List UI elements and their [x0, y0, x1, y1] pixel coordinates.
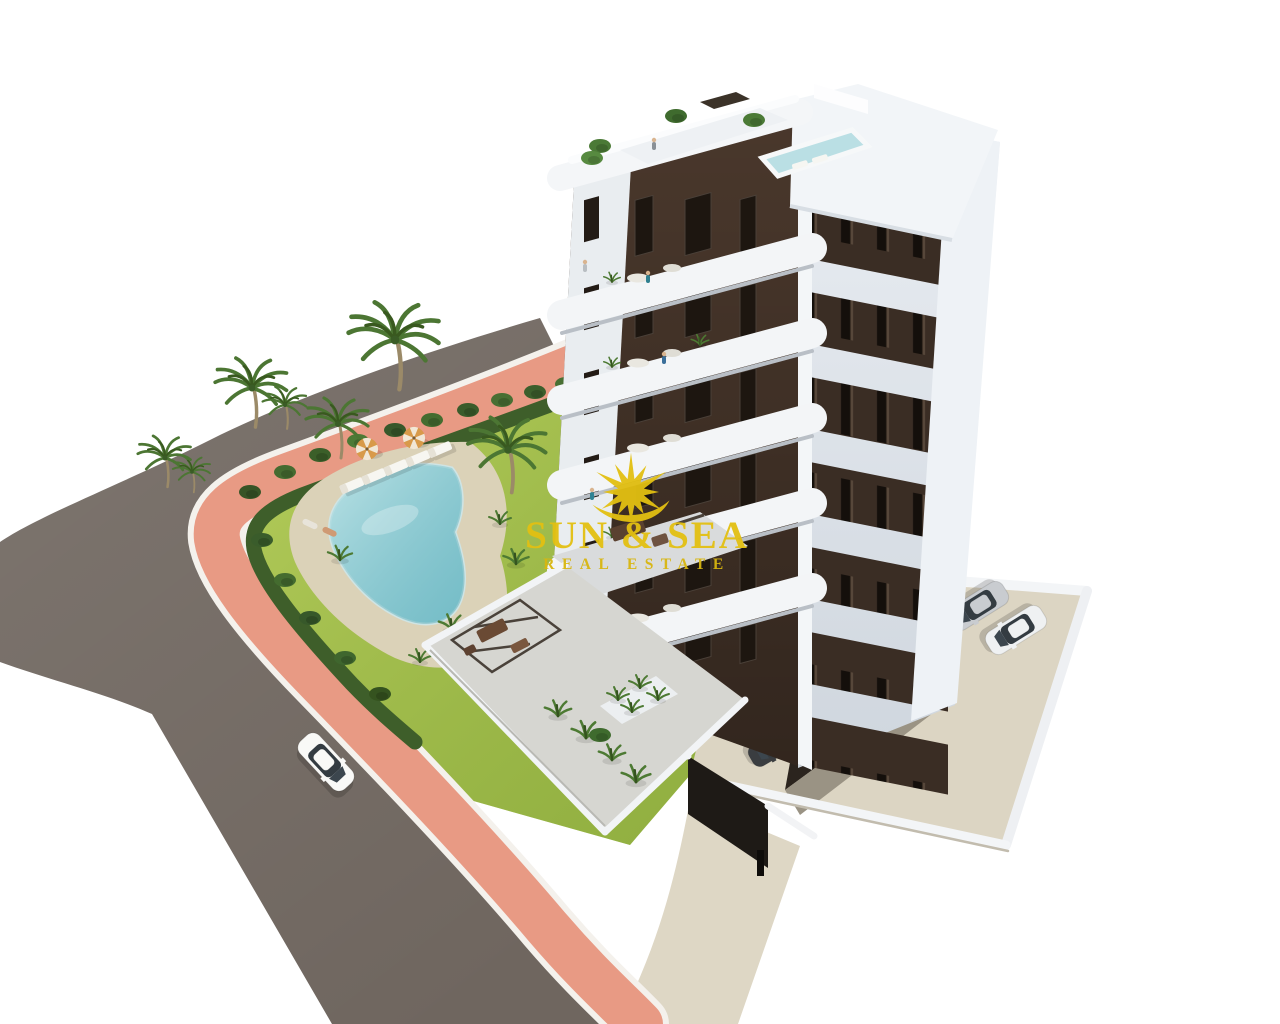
render-image: SUN & SEA REAL ESTATE — [0, 0, 1280, 1024]
logo-title: SUN & SEA — [525, 514, 749, 557]
person — [652, 138, 656, 150]
scene-canvas: SUN & SEA REAL ESTATE — [0, 0, 1280, 1024]
logo-subtitle: REAL ESTATE — [543, 556, 730, 573]
